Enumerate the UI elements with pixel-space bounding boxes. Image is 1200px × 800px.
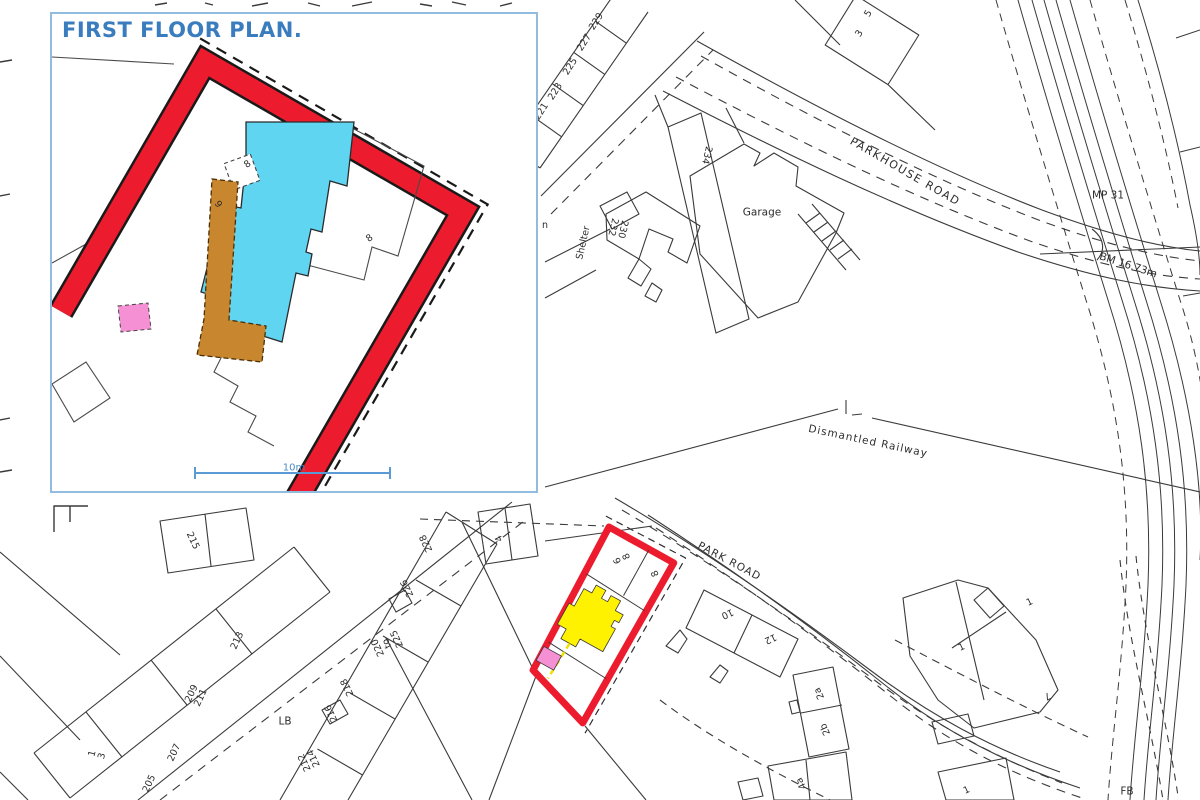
site-plan-page: { "inset": { "title": "FIRST FLOOR PLAN.…	[0, 0, 1200, 800]
inset-plan-drawing	[52, 14, 536, 491]
building-5-3	[795, 0, 935, 130]
subject-plot	[509, 514, 686, 734]
houses-2a-2b-4a	[660, 667, 852, 800]
inset-title: FIRST FLOOR PLAN.	[62, 18, 302, 42]
houses-1-7	[903, 580, 1058, 800]
footpath-lines	[1120, 556, 1178, 800]
garage-block	[690, 108, 860, 318]
inset-pink-room	[118, 303, 151, 332]
railway-tracks	[996, 0, 1200, 800]
street-north	[509, 0, 713, 214]
building-230-232	[545, 192, 700, 302]
park-road-lines	[615, 498, 1088, 799]
first-floor-plan-inset: FIRST FLOOR PLAN. 10m 8 6 8	[50, 12, 538, 493]
building-234	[655, 95, 749, 333]
dismantled-railway-lines	[545, 400, 1200, 541]
inset-scale-label: 10m	[283, 463, 305, 474]
